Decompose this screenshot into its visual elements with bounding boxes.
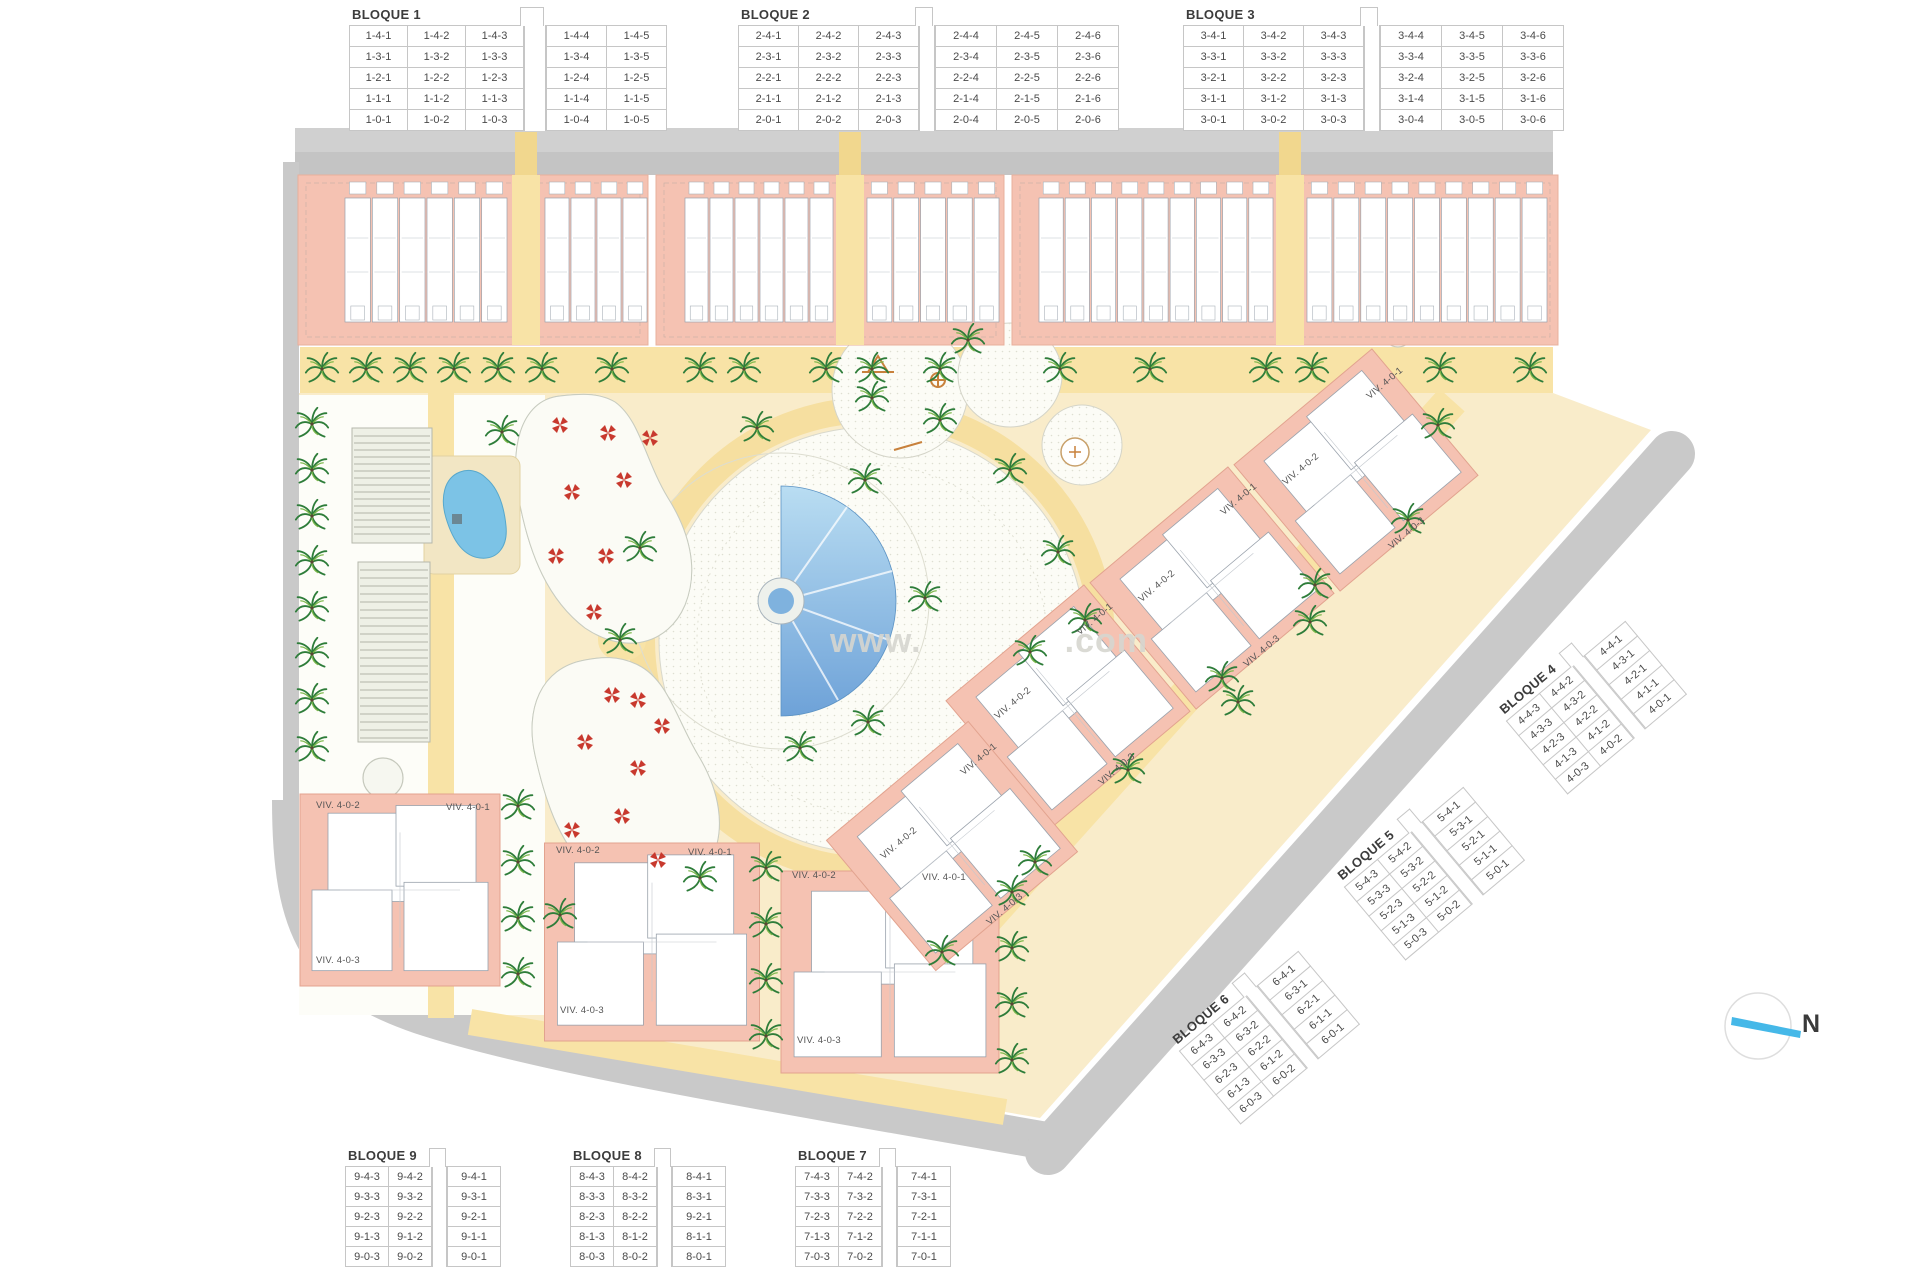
unit-cell: 3-2-2 — [1244, 68, 1304, 89]
unit-cell: 8-4-1 — [673, 1167, 726, 1187]
unit-cell: 3-1-3 — [1304, 89, 1364, 110]
unit-cell: 3-1-2 — [1244, 89, 1304, 110]
unit-cell: 1-1-5 — [607, 89, 667, 110]
unit-grid: 1-4-11-4-21-4-31-3-11-3-21-3-31-2-11-2-2… — [349, 25, 524, 131]
bloque-8-table: BLOQUE 88-4-38-4-28-3-38-3-28-2-38-2-28-… — [570, 1146, 726, 1267]
unit-cell: 3-2-3 — [1304, 68, 1364, 89]
bloque-1-table: BLOQUE 11-4-11-4-21-4-31-3-11-3-21-3-31-… — [349, 5, 667, 131]
unit-cell: 7-4-3 — [796, 1167, 839, 1187]
unit-cell: 2-1-5 — [997, 89, 1058, 110]
unit-cell: 7-0-3 — [796, 1247, 839, 1267]
unit-cell: 1-0-4 — [547, 110, 607, 131]
watermark: www. .com — [830, 622, 1148, 661]
unit-cell: 2-0-6 — [1058, 110, 1119, 131]
unit-cell: 2-3-6 — [1058, 47, 1119, 68]
unit-cell: 7-0-2 — [839, 1247, 882, 1267]
unit-cell: 7-4-1 — [898, 1167, 951, 1187]
viv-label: VIV. 4-0-3 — [797, 1035, 841, 1046]
unit-cell: 9-2-1 — [673, 1207, 726, 1227]
unit-cell: 3-1-5 — [1442, 89, 1503, 110]
unit-cell: 3-0-4 — [1381, 110, 1442, 131]
table-notch — [1360, 7, 1378, 26]
unit-cell: 3-0-2 — [1244, 110, 1304, 131]
unit-cell: 8-0-2 — [614, 1247, 657, 1267]
unit-cell: 2-2-3 — [859, 68, 919, 89]
bloque-7-table: BLOQUE 77-4-37-4-27-3-37-3-27-2-37-2-27-… — [795, 1146, 951, 1267]
unit-grid: 3-4-13-4-23-4-33-3-13-3-23-3-33-2-13-2-2… — [1183, 25, 1364, 131]
bloque-2-table: BLOQUE 22-4-12-4-22-4-32-3-12-3-22-3-32-… — [738, 5, 1119, 131]
unit-cell: 3-2-1 — [1184, 68, 1244, 89]
unit-cell: 3-4-2 — [1244, 26, 1304, 47]
unit-cell: 7-0-1 — [898, 1247, 951, 1267]
unit-cell: 9-3-1 — [448, 1187, 501, 1207]
unit-cell: 2-2-5 — [997, 68, 1058, 89]
unit-cell: 9-1-1 — [448, 1227, 501, 1247]
unit-cell: 1-2-5 — [607, 68, 667, 89]
unit-cell: 2-1-4 — [936, 89, 997, 110]
compass-north-label: N — [1802, 1010, 1820, 1039]
unit-cell: 1-4-4 — [547, 26, 607, 47]
unit-cell: 9-4-2 — [389, 1167, 432, 1187]
unit-grid: 2-4-42-4-52-4-62-3-42-3-52-3-62-2-42-2-5… — [935, 25, 1119, 131]
unit-cell: 9-1-3 — [346, 1227, 389, 1247]
unit-cell: 3-1-1 — [1184, 89, 1244, 110]
unit-cell: 3-4-1 — [1184, 26, 1244, 47]
unit-cell: 7-2-3 — [796, 1207, 839, 1227]
unit-cell: 2-0-3 — [859, 110, 919, 131]
unit-cell: 1-0-1 — [350, 110, 408, 131]
unit-cell: 3-0-3 — [1304, 110, 1364, 131]
unit-cell: 2-0-2 — [799, 110, 859, 131]
unit-grid: 9-4-39-4-29-3-39-3-29-2-39-2-29-1-39-1-2… — [345, 1166, 432, 1267]
unit-cell: 9-0-2 — [389, 1247, 432, 1267]
unit-cell: 1-3-1 — [350, 47, 408, 68]
unit-cell: 3-2-6 — [1503, 68, 1564, 89]
unit-cell: 1-4-2 — [408, 26, 466, 47]
unit-cell: 1-2-3 — [466, 68, 524, 89]
table-notch — [915, 7, 933, 26]
unit-cell: 9-0-1 — [448, 1247, 501, 1267]
kids-pool — [424, 456, 520, 574]
unit-cell: 3-3-4 — [1381, 47, 1442, 68]
bloque-title: BLOQUE 7 — [795, 1146, 951, 1166]
unit-cell: 2-4-1 — [739, 26, 799, 47]
table-gap-column — [657, 1166, 672, 1267]
unit-cell: 8-3-3 — [571, 1187, 614, 1207]
unit-cell: 9-3-2 — [389, 1187, 432, 1207]
unit-cell: 3-1-4 — [1381, 89, 1442, 110]
table-notch — [520, 7, 544, 26]
unit-cell: 2-4-2 — [799, 26, 859, 47]
unit-grid: 9-4-19-3-19-2-19-1-19-0-1 — [447, 1166, 501, 1267]
bloque-9-table: BLOQUE 99-4-39-4-29-3-39-3-29-2-39-2-29-… — [345, 1146, 501, 1267]
unit-cell: 7-1-3 — [796, 1227, 839, 1247]
table-notch — [879, 1148, 896, 1167]
unit-cell: 2-2-2 — [799, 68, 859, 89]
bloque-title: BLOQUE 1 — [349, 5, 667, 25]
viv-label: VIV. 4-0-3 — [316, 955, 360, 966]
unit-cell: 3-4-3 — [1304, 26, 1364, 47]
unit-cell: 1-1-2 — [408, 89, 466, 110]
unit-cell: 9-1-2 — [389, 1227, 432, 1247]
unit-cell: 2-1-6 — [1058, 89, 1119, 110]
unit-cell: 2-4-4 — [936, 26, 997, 47]
unit-cell: 1-1-3 — [466, 89, 524, 110]
unit-cell: 7-1-2 — [839, 1227, 882, 1247]
unit-cell: 2-3-5 — [997, 47, 1058, 68]
unit-cell: 3-2-4 — [1381, 68, 1442, 89]
unit-grid: 8-4-38-4-28-3-38-3-28-2-38-2-28-1-38-1-2… — [570, 1166, 657, 1267]
unit-cell: 8-0-1 — [673, 1247, 726, 1267]
unit-cell: 2-4-3 — [859, 26, 919, 47]
unit-cell: 7-2-1 — [898, 1207, 951, 1227]
table-notch — [429, 1148, 446, 1167]
unit-cell: 2-0-1 — [739, 110, 799, 131]
unit-cell: 1-4-5 — [607, 26, 667, 47]
table-gap-column — [1364, 25, 1380, 131]
unit-cell: 7-3-2 — [839, 1187, 882, 1207]
unit-grid: 8-4-18-3-19-2-18-1-18-0-1 — [672, 1166, 726, 1267]
unit-cell: 3-3-1 — [1184, 47, 1244, 68]
unit-cell: 8-2-3 — [571, 1207, 614, 1227]
compass-icon — [1725, 993, 1801, 1059]
unit-cell: 1-1-4 — [547, 89, 607, 110]
unit-cell: 1-4-3 — [466, 26, 524, 47]
watermark-left: www. — [830, 622, 922, 661]
unit-cell: 8-1-3 — [571, 1227, 614, 1247]
unit-cell: 3-0-6 — [1503, 110, 1564, 131]
unit-cell: 3-4-4 — [1381, 26, 1442, 47]
watermark-right: .com — [1065, 622, 1148, 661]
unit-cell: 3-4-5 — [1442, 26, 1503, 47]
unit-cell: 8-3-2 — [614, 1187, 657, 1207]
unit-cell: 9-2-1 — [448, 1207, 501, 1227]
unit-cell: 8-1-2 — [614, 1227, 657, 1247]
unit-cell: 8-3-1 — [673, 1187, 726, 1207]
unit-cell: 2-3-4 — [936, 47, 997, 68]
unit-cell: 7-1-1 — [898, 1227, 951, 1247]
unit-cell: 2-2-4 — [936, 68, 997, 89]
unit-cell: 2-2-6 — [1058, 68, 1119, 89]
unit-cell: 7-3-1 — [898, 1187, 951, 1207]
viv-label: VIV. 4-0-1 — [922, 872, 966, 883]
bloque-title: BLOQUE 8 — [570, 1146, 726, 1166]
unit-cell: 8-4-3 — [571, 1167, 614, 1187]
unit-grid: 7-4-17-3-17-2-17-1-17-0-1 — [897, 1166, 951, 1267]
bloque-title: BLOQUE 9 — [345, 1146, 501, 1166]
unit-cell: 9-4-3 — [346, 1167, 389, 1187]
unit-cell: 2-4-6 — [1058, 26, 1119, 47]
viv-label: VIV. 4-0-1 — [688, 847, 732, 858]
unit-cell: 9-3-3 — [346, 1187, 389, 1207]
viv-label: VIV. 4-0-2 — [792, 870, 836, 881]
unit-cell: 3-3-2 — [1244, 47, 1304, 68]
unit-cell: 3-2-5 — [1442, 68, 1503, 89]
unit-cell: 1-3-3 — [466, 47, 524, 68]
unit-cell: 1-4-1 — [350, 26, 408, 47]
unit-cell: 1-1-1 — [350, 89, 408, 110]
unit-cell: 9-2-2 — [389, 1207, 432, 1227]
unit-cell: 1-2-2 — [408, 68, 466, 89]
unit-cell: 2-1-3 — [859, 89, 919, 110]
unit-cell: 8-4-2 — [614, 1167, 657, 1187]
unit-cell: 7-3-3 — [796, 1187, 839, 1207]
unit-cell: 1-3-5 — [607, 47, 667, 68]
table-notch — [654, 1148, 671, 1167]
unit-cell: 3-0-5 — [1442, 110, 1503, 131]
unit-cell: 9-2-3 — [346, 1207, 389, 1227]
unit-cell: 3-3-3 — [1304, 47, 1364, 68]
unit-grid: 3-4-43-4-53-4-63-3-43-3-53-3-63-2-43-2-5… — [1380, 25, 1564, 131]
viv-label: VIV. 4-0-1 — [446, 802, 490, 813]
viv-label: VIV. 4-0-3 — [560, 1005, 604, 1016]
site-plan-canvas: BLOQUE 11-4-11-4-21-4-31-3-11-3-21-3-31-… — [0, 0, 1920, 1280]
table-gap-column — [919, 25, 935, 131]
unit-cell: 1-2-4 — [547, 68, 607, 89]
unit-cell: 2-1-2 — [799, 89, 859, 110]
unit-cell: 2-1-1 — [739, 89, 799, 110]
table-gap-column — [882, 1166, 897, 1267]
pergola-structures — [352, 428, 432, 798]
unit-cell: 7-4-2 — [839, 1167, 882, 1187]
unit-cell: 1-0-3 — [466, 110, 524, 131]
unit-cell: 2-3-2 — [799, 47, 859, 68]
unit-cell: 1-0-2 — [408, 110, 466, 131]
unit-cell: 8-1-1 — [673, 1227, 726, 1247]
table-gap-column — [524, 25, 546, 131]
unit-cell: 2-3-3 — [859, 47, 919, 68]
unit-cell: 3-1-6 — [1503, 89, 1564, 110]
unit-cell: 8-0-3 — [571, 1247, 614, 1267]
unit-cell: 3-0-1 — [1184, 110, 1244, 131]
bloque-3-table: BLOQUE 33-4-13-4-23-4-33-3-13-3-23-3-33-… — [1183, 5, 1564, 131]
unit-cell: 7-2-2 — [839, 1207, 882, 1227]
unit-cell: 1-2-1 — [350, 68, 408, 89]
unit-cell: 2-4-5 — [997, 26, 1058, 47]
unit-cell: 2-0-4 — [936, 110, 997, 131]
unit-cell: 9-4-1 — [448, 1167, 501, 1187]
unit-cell: 3-3-5 — [1442, 47, 1503, 68]
unit-cell: 3-4-6 — [1503, 26, 1564, 47]
viv-label: VIV. 4-0-2 — [316, 800, 360, 811]
unit-grid: 7-4-37-4-27-3-37-3-27-2-37-2-27-1-37-1-2… — [795, 1166, 882, 1267]
unit-grid: 1-4-41-4-51-3-41-3-51-2-41-2-51-1-41-1-5… — [546, 25, 667, 131]
unit-cell: 8-2-2 — [614, 1207, 657, 1227]
unit-cell: 3-3-6 — [1503, 47, 1564, 68]
unit-cell: 2-0-5 — [997, 110, 1058, 131]
unit-cell: 1-0-5 — [607, 110, 667, 131]
table-gap-column — [432, 1166, 447, 1267]
unit-cell: 2-2-1 — [739, 68, 799, 89]
unit-cell: 9-0-3 — [346, 1247, 389, 1267]
viv-label: VIV. 4-0-2 — [556, 845, 600, 856]
unit-cell: 1-3-4 — [547, 47, 607, 68]
unit-cell: 1-3-2 — [408, 47, 466, 68]
unit-cell: 2-3-1 — [739, 47, 799, 68]
unit-grid: 2-4-12-4-22-4-32-3-12-3-22-3-32-2-12-2-2… — [738, 25, 919, 131]
